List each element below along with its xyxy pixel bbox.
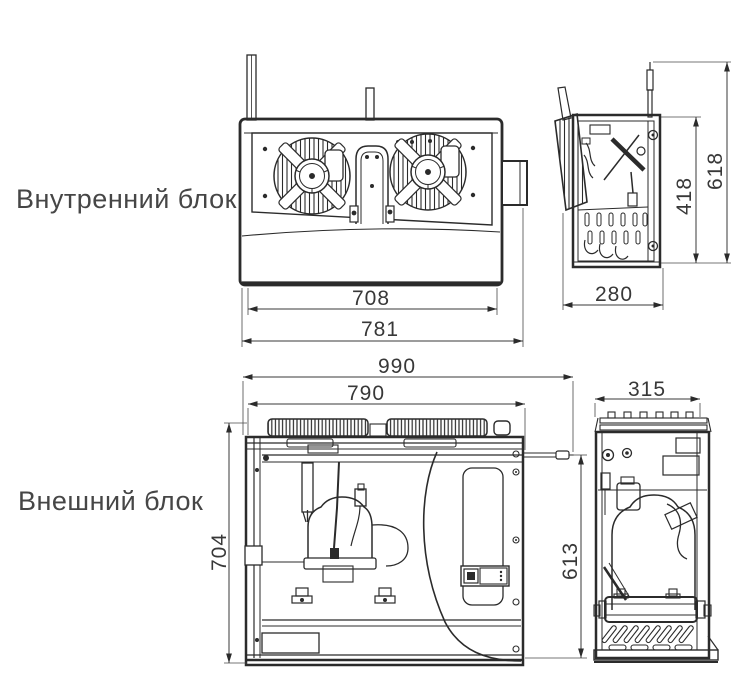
dim-613-label: 613 (559, 542, 583, 580)
service-pipe-stub (523, 451, 574, 459)
vent-slots (601, 625, 694, 650)
dim-618-label: 618 (704, 152, 728, 190)
dim-708-label: 708 (352, 287, 390, 311)
internal-bracket (604, 135, 645, 180)
base-tray (262, 633, 319, 653)
dim-790-label: 790 (347, 382, 385, 406)
fan-left (274, 138, 350, 214)
top-grilles (268, 419, 510, 436)
compressor (304, 497, 376, 582)
outdoor-side-body (596, 432, 709, 658)
dim-280-label: 280 (595, 283, 633, 307)
service-valves (292, 588, 395, 603)
label-plate-small (676, 438, 700, 453)
switch-box (461, 566, 509, 586)
dim-315-label: 315 (628, 378, 666, 402)
indoor-unit-front-view (240, 55, 527, 285)
discharge-pipe (372, 525, 408, 566)
dim-781-label: 781 (361, 318, 399, 342)
top-grille-side (595, 412, 711, 432)
side-duct-connector (502, 161, 527, 205)
outdoor-unit-front-view (245, 419, 574, 665)
perforated-panel (578, 207, 648, 244)
pipe-top (647, 62, 653, 117)
mount-bolts (649, 131, 658, 251)
coil-tubes (584, 240, 628, 259)
top-rail-clips (287, 439, 456, 453)
outdoor-unit-label: Внешний блок (18, 486, 203, 517)
fan-right (390, 134, 466, 210)
left-rail (245, 437, 262, 658)
dim-990-label: 990 (378, 355, 416, 379)
terminal-knobs (603, 449, 632, 461)
refrigerant-pipes-top (247, 55, 374, 120)
curved-side-panel (424, 451, 521, 661)
dim-418-label: 418 (673, 177, 697, 215)
technical-drawing-page: Внутренний блок Внешний блок 708 781 280… (0, 0, 746, 681)
dim-704-label: 704 (208, 533, 232, 571)
pipe-slanted (558, 87, 571, 120)
coil-fins (555, 114, 587, 210)
label-plate-large (663, 456, 699, 475)
compressor-side (601, 473, 697, 610)
center-channel (350, 146, 394, 224)
indoor-unit-side-view (555, 62, 660, 267)
lower-panel-seam (242, 229, 500, 236)
outdoor-unit-side-view (594, 412, 718, 662)
outdoor-body-outline (246, 437, 523, 665)
indoor-unit-label: Внутренний блок (16, 184, 237, 215)
